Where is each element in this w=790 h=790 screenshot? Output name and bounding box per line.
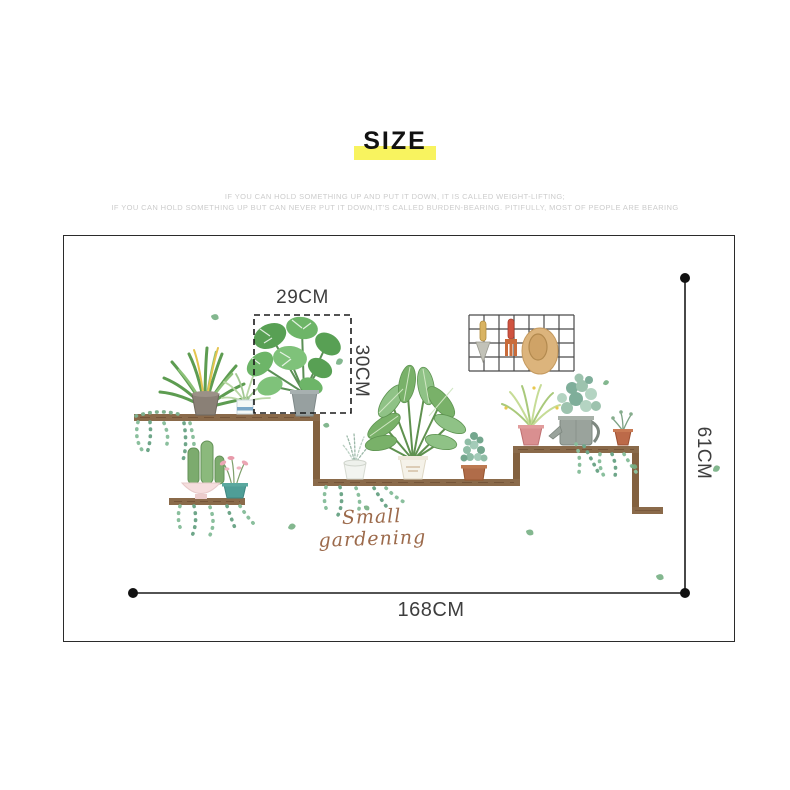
overall-width-label: 168CM — [377, 600, 485, 620]
caption-line-1: IF YOU CAN HOLD SOMETHING UP AND PUT IT … — [0, 191, 790, 202]
product-size-page: SIZE IF YOU CAN HOLD SOMETHING UP AND PU… — [0, 0, 790, 790]
page-title: SIZE — [0, 127, 790, 160]
diagram-artwork — [64, 236, 734, 641]
monstera-plant — [242, 314, 345, 416]
watering-can — [549, 374, 601, 479]
caption-line-2: IF YOU CAN HOLD SOMETHING UP BUT CAN NEV… — [0, 202, 790, 213]
leafy-plant — [364, 364, 469, 479]
width-measure-line — [128, 588, 690, 598]
size-title-text: SIZE — [354, 127, 436, 160]
garden-trowel — [476, 321, 490, 362]
wire-grid-rack — [469, 315, 574, 374]
sprig-pot — [611, 410, 633, 445]
yucca-plant — [160, 348, 248, 415]
overall-height-label: 61CM — [693, 421, 713, 485]
herb-pot — [342, 434, 369, 479]
jade-plant — [461, 432, 488, 480]
product-script-label: Small gardening — [286, 503, 457, 553]
height-measure-line — [680, 273, 690, 593]
caption-block: IF YOU CAN HOLD SOMETHING UP AND PUT IT … — [0, 191, 790, 213]
inset-height-label: 30CM — [351, 339, 371, 403]
inset-width-label: 29CM — [254, 288, 351, 308]
straw-hat — [522, 328, 558, 374]
size-diagram-panel: 29CM 30CM 61CM 168CM Small gardening — [63, 235, 735, 642]
cacti-bowl — [182, 441, 224, 499]
garden-fork — [505, 319, 517, 356]
